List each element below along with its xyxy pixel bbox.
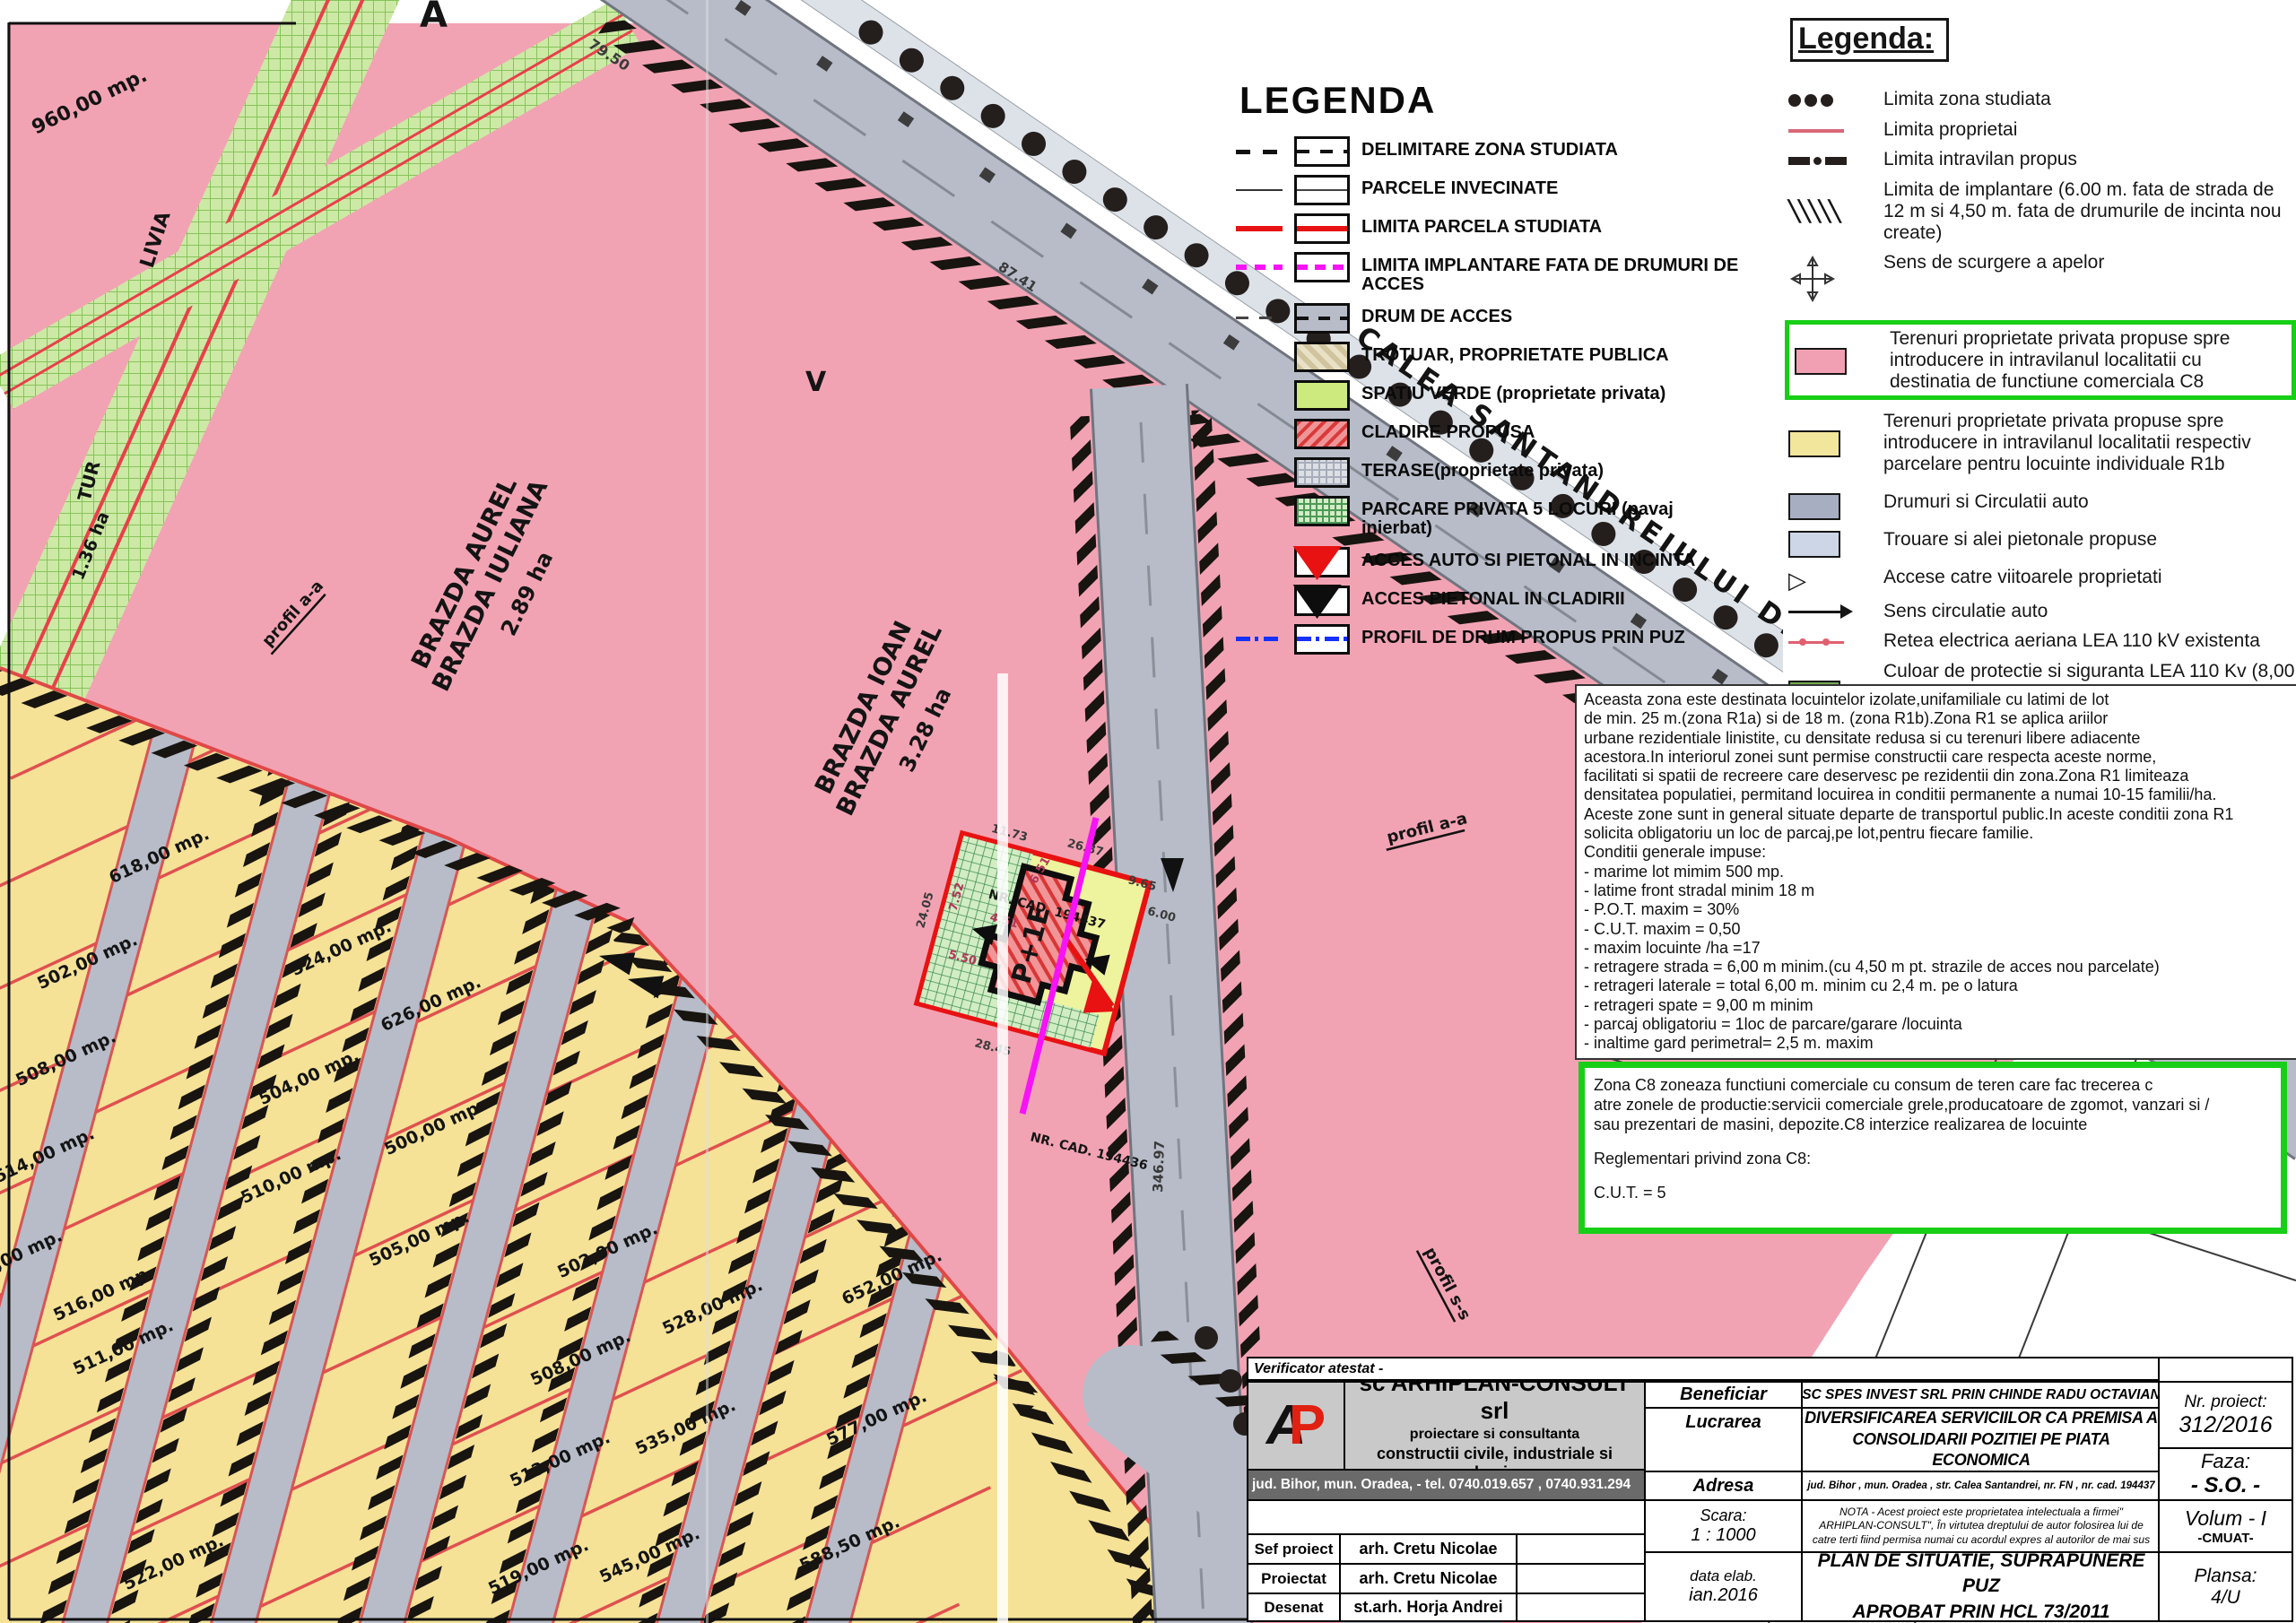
legend-item-label: ACCES AUTO SI PIETONAL IN INCINTA (1361, 547, 1695, 570)
legend-item-label: Limita de implantare (6.00 m. fata de st… (1883, 179, 2296, 243)
plansa-value: 4/U (2211, 1587, 2240, 1609)
drawing-title: PLAN DE SITUATIE, SUPRAPUNERE PUZ APROBA… (1801, 1551, 2161, 1622)
legend-item: Terenuri proprietate privata propuse spr… (1788, 411, 2296, 474)
adresa-value: jud. Bihor , mun. Oradea , str. Calea Sa… (1801, 1471, 2161, 1501)
legend-item: ACCES AUTO SI PIETONAL IN INCINTA (1236, 547, 1774, 577)
map-label: V (805, 367, 827, 398)
rule-line: atre zonele de productie:servicii comerc… (1594, 1095, 2272, 1115)
road-swatch-icon (1788, 491, 1874, 520)
legend-item: SPATIU VERDE (proprietate privata) (1236, 380, 1774, 411)
legend-item-label: Drumuri si Circulatii auto (1883, 491, 2296, 520)
legend-right: Legenda: Limita zona studiata Limita pro… (1783, 11, 2296, 798)
spacer (1236, 586, 1283, 616)
signature-cell (1516, 1593, 1646, 1622)
faza-label: Faza: (2201, 1450, 2250, 1473)
dashdot-line-icon (1788, 149, 1874, 170)
map-label: A (420, 0, 448, 36)
scara-value: 1 : 1000 (1691, 1525, 1755, 1546)
dashed-line-icon (1236, 136, 1283, 167)
legend-item-label: LIMITA PARCELA STUDIATA (1361, 213, 1602, 237)
empty-cell (1247, 1499, 1646, 1535)
legend-item: TERASE(proprietate privata) (1236, 457, 1774, 488)
empty-cell (2158, 1357, 2293, 1383)
legend-item: Trouare si alei pietonale propuse (1788, 529, 2296, 558)
legend-item-label: DELIMITARE ZONA STUDIATA (1361, 136, 1618, 160)
legend-item: TROTUAR, PROPRIETATE PUBLICA (1236, 342, 1774, 372)
adresa-label: Adresa (1644, 1471, 1803, 1501)
legend-item-label: Trouare si alei pietonale propuse (1883, 529, 2296, 558)
legend-item-label: ACCES PIETONAL IN CLADIRII (1361, 586, 1625, 609)
legend-item-label: DRUM DE ACCES (1361, 303, 1512, 326)
legend-item-label: SPATIU VERDE (proprietate privata) (1361, 380, 1665, 404)
legend-item: Sens circulatie auto (1788, 601, 2296, 622)
company-cell: sc ARHIPLAN-CONSULT srl proiectare si co… (1344, 1381, 1646, 1471)
nota-cell: NOTA - Acest proiect este proprietatea i… (1801, 1499, 2161, 1553)
title-block: Verificator atestat - A P sc ARHIPLAN-CO… (1247, 1357, 2293, 1622)
legend-item: ▷Accese catre viitoarele proprietati (1788, 567, 2296, 592)
company-address: jud. Bihor, mun. Oradea, - tel. 0740.019… (1247, 1469, 1646, 1501)
legend-item-label: Accese catre viitoarele proprietati (1883, 567, 2296, 592)
plansa-cell: Plansa: 4/U (2158, 1551, 2293, 1622)
plansa-label: Plansa: (2194, 1566, 2257, 1587)
acces-pietonal-icon (1294, 586, 1350, 616)
rule-line: Zona C8 zoneaza functiuni comerciale cu … (1594, 1075, 2272, 1095)
legend-title: LEGENDA (1239, 79, 1774, 122)
data-label: data elab. (1690, 1567, 1757, 1585)
rule-line: - latime front stradal minim 18 m (1584, 881, 2289, 900)
dots-icon (1788, 89, 1874, 110)
trotuar-swatch-icon (1294, 342, 1350, 372)
pink-swatch-icon (1795, 328, 1881, 392)
scara-cell: Scara: 1 : 1000 (1644, 1499, 1803, 1553)
rule-line: - maxim locuinte /ha =17 (1584, 939, 2289, 958)
terase-swatch-icon (1294, 457, 1350, 488)
volum-sub: -CMUAT- (2197, 1531, 2253, 1546)
implantare-swatch-icon (1294, 252, 1350, 282)
magenta-dashed-line-icon (1236, 252, 1283, 282)
verificator-cell: Verificator atestat - (1247, 1357, 2160, 1381)
legend-title: Legenda: (1790, 18, 1949, 62)
delimitare-swatch-icon (1294, 136, 1350, 167)
legend-item: Limita proprietai (1788, 119, 2296, 141)
legend-item-label: Limita proprietai (1883, 119, 2296, 141)
lucrarea-label: Lucrarea (1644, 1407, 1803, 1472)
faza-value: - S.O. - (2191, 1473, 2260, 1498)
highlighted-legend-item: Terenuri proprietate privata propuse spr… (1785, 320, 2296, 400)
legend-item: DRUM DE ACCES (1236, 303, 1774, 334)
spacer (1236, 457, 1283, 488)
drawing-title-line: APROBAT PRIN HCL 73/2011 (1852, 1600, 2109, 1622)
nr-proiect-value: 312/2016 (2179, 1412, 2272, 1438)
cladire-swatch-icon (1294, 419, 1350, 449)
rule-line: - retragere strada = 6,00 m minim.(cu 4,… (1584, 958, 2289, 976)
r1-zone-rules-box: Aceasta zona este destinata locuintelor … (1575, 684, 2296, 1060)
person-cell: st.arh. Horja Andrei (1339, 1593, 1518, 1622)
spatiu-verde-swatch-icon (1294, 380, 1350, 411)
spacer (1236, 380, 1283, 411)
rule-line: - inaltime gard perimetral= 2,5 m. maxim (1584, 1034, 2289, 1053)
profil-drum-swatch-icon (1294, 624, 1350, 655)
legend-item-label: PARCARE PRIVATA 5 LOCURI (pavaj inierbat… (1361, 496, 1747, 539)
hatch-icon: ╲╲╲╲╲ (1788, 179, 1874, 243)
legend-item-label: TERASE(proprietate privata) (1361, 457, 1604, 481)
water-flow-cross-icon (1788, 252, 1874, 304)
rule-heading: Reglementari privind zona C8: (1594, 1149, 2272, 1168)
rule-line: acestora.In interiorul zonei sunt permis… (1584, 748, 2289, 767)
legend-item: Sens de scurgere a apelor (1788, 252, 2296, 304)
role-cell: Desenat (1247, 1593, 1341, 1622)
legend-item-label: Limita zona studiata (1883, 89, 2296, 110)
line-icon (1236, 175, 1283, 205)
legend-item-label: Sens circulatie auto (1883, 601, 2296, 622)
scan-artifact (706, 0, 709, 1623)
lucrarea-value: DIVERSIFICAREA SERVICIILOR CA PREMISA A … (1801, 1407, 2161, 1472)
cut-value: C.U.T. = 5 (1594, 1183, 2272, 1202)
rule-line: de min. 25 m.(zona R1a) si de 18 m. (zon… (1584, 709, 2289, 728)
legend-item-label: PARCELE INVECINATE (1361, 175, 1558, 198)
spacer (1236, 496, 1283, 526)
nr-proiect-cell: Nr. proiect: 312/2016 (2158, 1381, 2293, 1449)
legend-item-label: LIMITA IMPLANTARE FATA DE DRUMURI DE ACC… (1361, 252, 1747, 295)
legend-item: LIMITA IMPLANTARE FATA DE DRUMURI DE ACC… (1236, 252, 1774, 295)
red-line-icon (1236, 213, 1283, 244)
role-cell: Sef proiect (1247, 1533, 1341, 1565)
sidewalk-swatch-icon (1788, 529, 1874, 558)
drawing-title-line: PLAN DE SITUATIE, SUPRAPUNERE PUZ (1803, 1551, 2160, 1600)
legend-item-label: Sens de scurgere a apelor (1883, 252, 2296, 304)
beneficiar-value: SC SPES INVEST SRL PRIN CHINDE RADU OCTA… (1801, 1381, 2161, 1409)
legend-item: Drumuri si Circulatii auto (1788, 491, 2296, 520)
yellow-swatch-icon (1788, 411, 1874, 474)
dimension-label: 346.97 (1150, 1141, 1168, 1193)
legend-center: LEGENDA DELIMITARE ZONA STUDIATA PARCELE… (1236, 79, 1774, 663)
rule-line: urbane rezidentiale linistite, cu densit… (1584, 729, 2289, 748)
faza-cell: Faza: - S.O. - (2158, 1447, 2293, 1501)
rule-line: - P.O.T. maxim = 30% (1584, 900, 2289, 919)
rule-line: sau prezentari de masini, depozite.C8 in… (1594, 1115, 2272, 1134)
company-logo: A P (1247, 1381, 1345, 1471)
drum-swatch-icon (1294, 303, 1350, 334)
rule-line: solicita obligatoriu un loc de parcaj,pe… (1584, 824, 2289, 843)
nr-proiect-label: Nr. proiect: (2184, 1393, 2266, 1412)
rule-line: - parcaj obligatoriu = 1loc de parcare/g… (1584, 1015, 2289, 1034)
signature-cell (1516, 1533, 1646, 1565)
data-cell: data elab. ian.2016 (1644, 1551, 1803, 1622)
legend-item-label: TROTUAR, PROPRIETATE PUBLICA (1361, 342, 1669, 365)
legend-item: ╲╲╲╲╲Limita de implantare (6.00 m. fata … (1788, 179, 2296, 243)
legend-item: DELIMITARE ZONA STUDIATA (1236, 136, 1774, 167)
c8-zone-rules-box: Zona C8 zoneaza functiuni comerciale cu … (1578, 1062, 2287, 1234)
parcare-swatch-icon (1294, 496, 1350, 526)
legend-item: Limita zona studiata (1788, 89, 2296, 110)
rule-line: - retrageri laterale = total 6,00 m. min… (1584, 976, 2289, 995)
person-cell: arh. Cretu Nicolae (1339, 1563, 1518, 1594)
legend-item: PROFIL DE DRUM PROPUS PRIN PUZ (1236, 624, 1774, 655)
spacer (1236, 342, 1283, 372)
legend-item: ACCES PIETONAL IN CLADIRII (1236, 586, 1774, 616)
signature-cell (1516, 1563, 1646, 1594)
spacer (1236, 419, 1283, 449)
lea-line-icon (1788, 630, 1874, 652)
site-plan-page: P+1E NR. CAD. 194437 11.73 26.87 9.65 6.… (0, 0, 2296, 1623)
gray-dashed-line-icon (1236, 303, 1283, 334)
legend-item: Retea electrica aeriana LEA 110 kV exist… (1788, 630, 2296, 652)
rule-line: - C.U.T. maxim = 0,50 (1584, 920, 2289, 939)
rule-line: Aceste zone sunt in general situate depa… (1584, 805, 2289, 824)
role-cell: Proiectat (1247, 1563, 1341, 1594)
legend-item-label: Retea electrica aeriana LEA 110 kV exist… (1883, 630, 2296, 652)
company-subtitle: constructii civile, industriale si urban… (1345, 1445, 1644, 1471)
rule-line: facilitati si spatii de recreere care de… (1584, 767, 2289, 785)
limita-swatch-icon (1294, 213, 1350, 244)
legend-item: PARCELE INVECINATE (1236, 175, 1774, 205)
lucrarea-line: DIVERSIFICAREA SERVICIILOR CA PREMISA A (1805, 1408, 2158, 1428)
rule-line: Conditii generale impuse: (1584, 843, 2289, 862)
rule-line: - marime lot mimim 500 mp. (1584, 863, 2289, 881)
company-subtitle: proiectare si consultanta (1410, 1427, 1579, 1443)
arrow-icon (1788, 601, 1874, 622)
parcele-swatch-icon (1294, 175, 1350, 205)
legend-item-label: Limita intravilan propus (1883, 149, 2296, 170)
scan-artifact (997, 673, 1008, 1623)
company-name: sc ARHIPLAN-CONSULT srl (1345, 1381, 1644, 1425)
access-triangle-icon: ▷ (1788, 567, 1874, 592)
volum-value: Volum - I (2185, 1506, 2266, 1531)
legend-item-label: CLADIRE PROPUSA (1361, 419, 1535, 442)
legend-item-label: PROFIL DE DRUM PROPUS PRIN PUZ (1361, 624, 1685, 647)
legend-item: Terenuri proprietate privata propuse spr… (1795, 328, 2286, 392)
logo-letter-p: P (1289, 1398, 1326, 1454)
spacer (1236, 547, 1283, 577)
legend-item: CLADIRE PROPUSA (1236, 419, 1774, 449)
pink-line-icon (1788, 119, 1874, 141)
legend-item-label: Terenuri proprietate privata propuse spr… (1890, 328, 2286, 392)
legend-item: Limita intravilan propus (1788, 149, 2296, 170)
rule-line: - retrageri spate = 9,00 m minim (1584, 996, 2289, 1015)
legend-item: PARCARE PRIVATA 5 LOCURI (pavaj inierbat… (1236, 496, 1774, 539)
lucrarea-line: CONSOLIDARII POZITIEI PE PIATA ECONOMICA (1803, 1429, 2160, 1471)
data-value: ian.2016 (1689, 1585, 1758, 1606)
volum-cell: Volum - I -CMUAT- (2158, 1499, 2293, 1553)
legend-item-label: Terenuri proprietate privata propuse spr… (1883, 411, 2296, 474)
rule-line: densitatea populatiei, permitand locuire… (1584, 785, 2289, 804)
person-cell: arh. Cretu Nicolae (1339, 1533, 1518, 1565)
legend-item: LIMITA PARCELA STUDIATA (1236, 213, 1774, 244)
rule-line: Aceasta zona este destinata locuintelor … (1584, 690, 2289, 709)
scara-label: Scara: (1700, 1506, 1746, 1525)
blue-dashdot-line-icon (1236, 624, 1283, 655)
beneficiar-label: Beneficiar (1644, 1381, 1803, 1409)
acces-auto-icon (1294, 547, 1350, 577)
